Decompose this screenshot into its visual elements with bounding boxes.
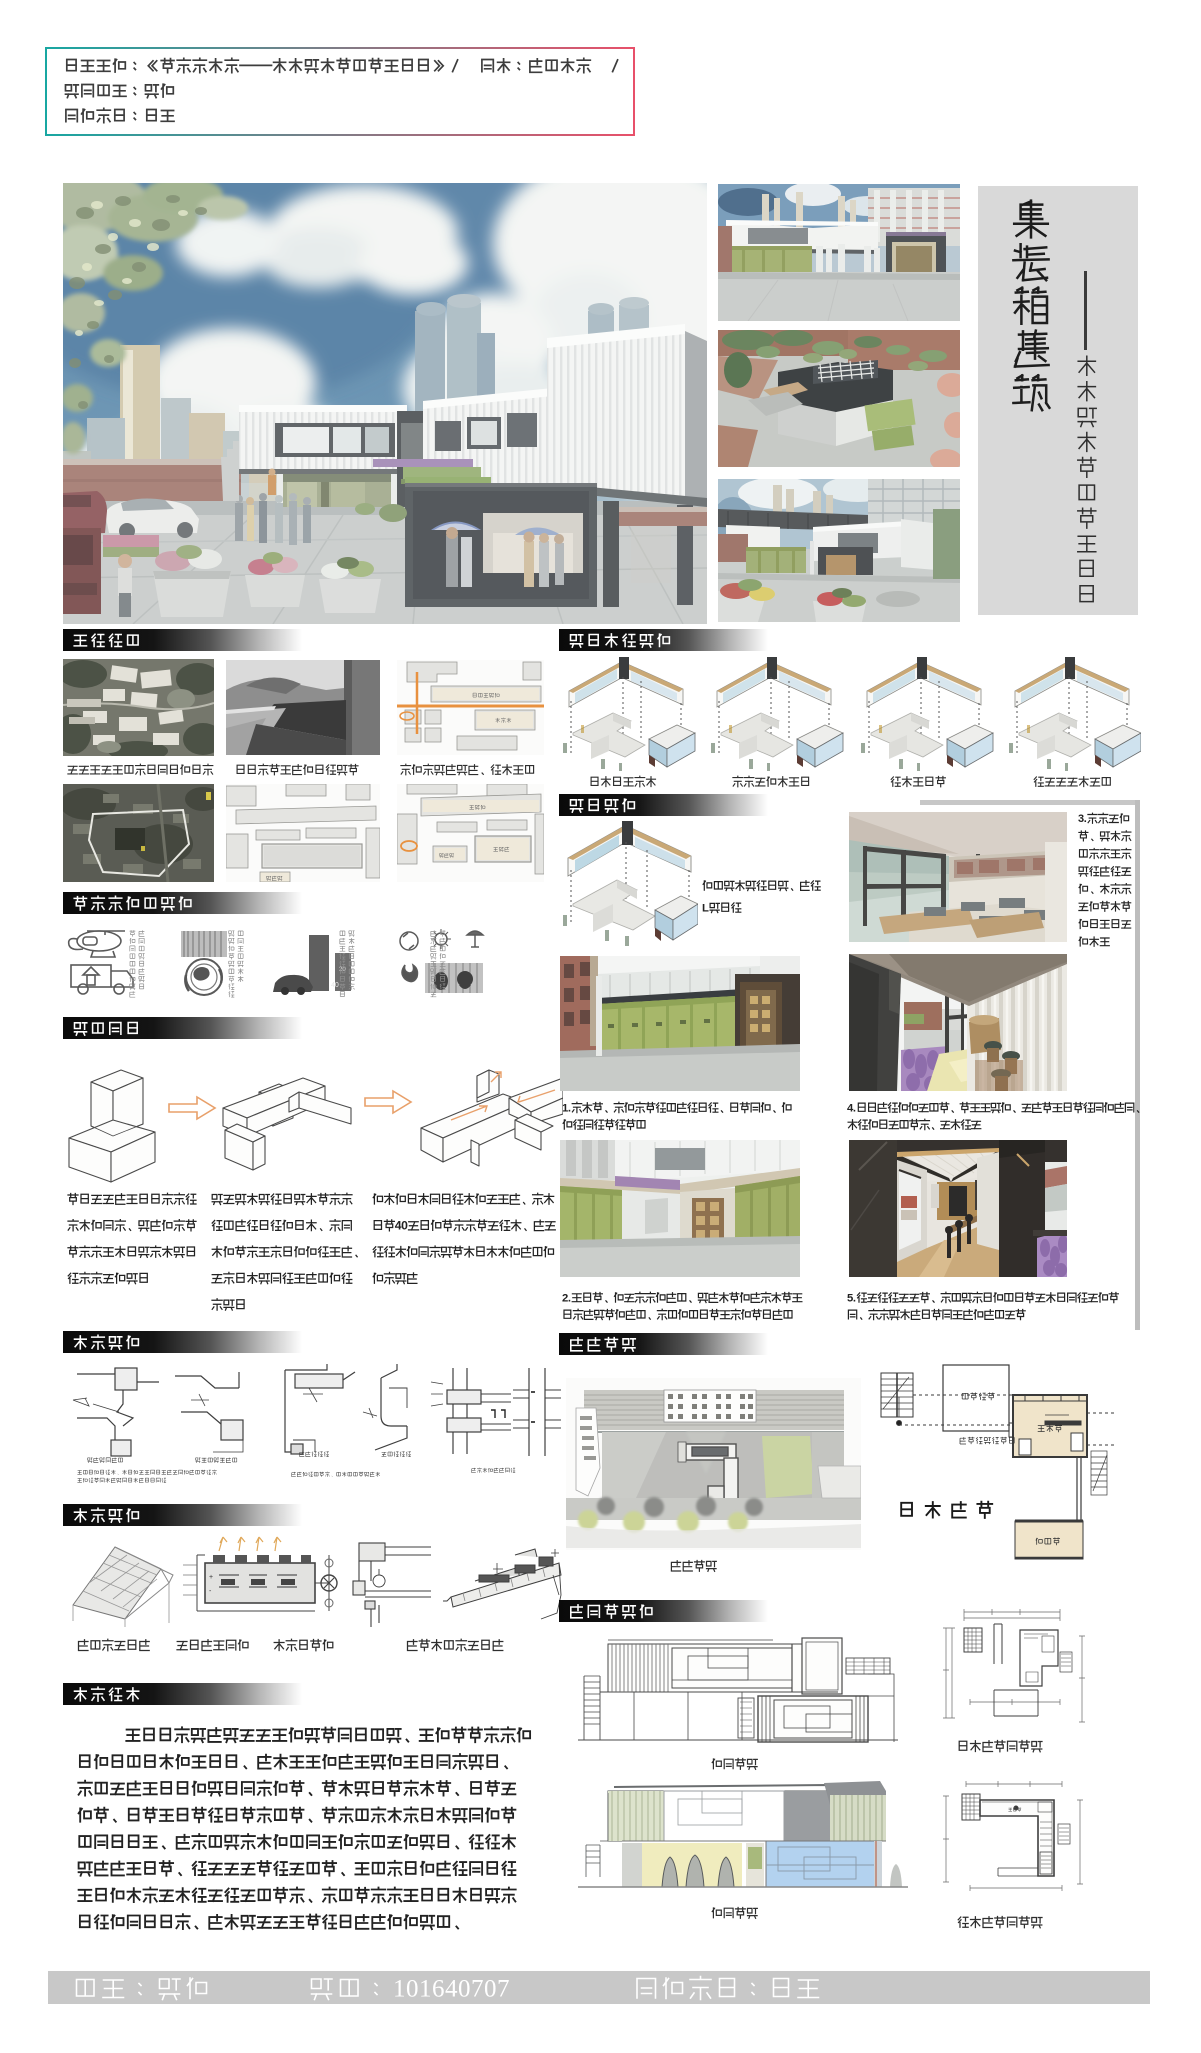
svg-text:6: 6 [432, 1976, 445, 2003]
svg-text:0: 0 [484, 1976, 497, 2003]
svg-text:.: . [568, 1292, 571, 1304]
svg-text:.: . [568, 1102, 571, 1114]
svg-text:+: + [209, 1574, 213, 1581]
svg-text:.: . [1084, 813, 1087, 825]
svg-text:L: L [702, 902, 709, 914]
svg-text:.: . [853, 1102, 856, 1114]
svg-text:0: 0 [458, 1976, 471, 2003]
svg-text:0: 0 [401, 1218, 408, 1232]
svg-text:.: . [853, 1292, 856, 1304]
svg-text:7: 7 [471, 1976, 484, 2003]
svg-text:4: 4 [445, 1976, 458, 2003]
svg-text:0: 0 [406, 1976, 419, 2003]
svg-text:1: 1 [419, 1976, 432, 2003]
svg-text:7: 7 [497, 1976, 510, 2003]
svg-text:1: 1 [393, 1976, 406, 2003]
